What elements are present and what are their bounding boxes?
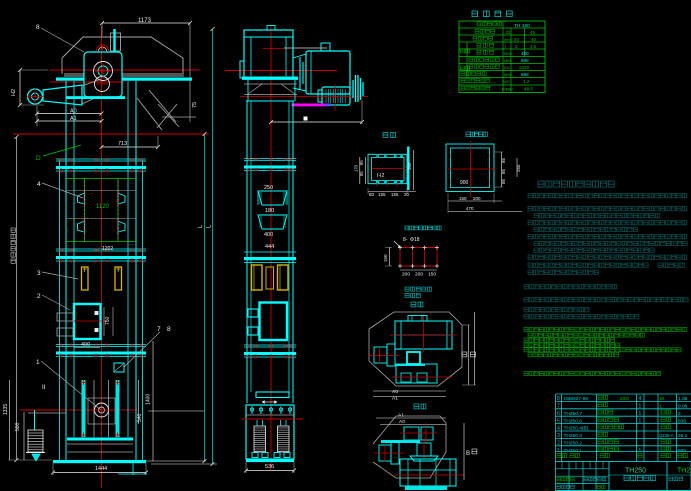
svg-text:200: 200 bbox=[473, 196, 481, 201]
svg-text:9.06: 9.06 bbox=[678, 404, 688, 410]
svg-text:1120: 1120 bbox=[96, 204, 110, 210]
svg-text:TH250.7: TH250.7 bbox=[564, 411, 583, 417]
svg-text:1: 1 bbox=[36, 359, 40, 366]
svg-text:I-I2: I-I2 bbox=[377, 173, 384, 179]
svg-text:48.5: 48.5 bbox=[524, 87, 533, 92]
svg-text:80: 80 bbox=[369, 192, 375, 197]
svg-text:TH250.3: TH250.3 bbox=[564, 433, 583, 439]
svg-text:A1: A1 bbox=[398, 413, 404, 419]
svg-text:32: 32 bbox=[506, 30, 511, 35]
svg-text:L: L bbox=[660, 404, 663, 410]
svg-text:685: 685 bbox=[678, 448, 686, 454]
svg-text:TH2: TH2 bbox=[677, 468, 690, 475]
svg-text:750: 750 bbox=[105, 316, 111, 325]
svg-text:N/S: N/S bbox=[503, 79, 510, 84]
svg-text:713: 713 bbox=[118, 141, 127, 147]
svg-text:A0: A0 bbox=[392, 389, 398, 395]
svg-text:180: 180 bbox=[265, 208, 274, 214]
svg-text:8: 8 bbox=[36, 24, 40, 31]
svg-text:360: 360 bbox=[407, 162, 412, 170]
svg-text:B: B bbox=[466, 451, 470, 457]
svg-text:150: 150 bbox=[383, 254, 388, 262]
svg-text:2: 2 bbox=[678, 411, 681, 417]
svg-text:900: 900 bbox=[460, 180, 469, 186]
svg-text:3: 3 bbox=[37, 270, 41, 277]
svg-text:155: 155 bbox=[378, 192, 386, 197]
svg-text:Q235-A: Q235-A bbox=[659, 433, 674, 438]
svg-text:4: 4 bbox=[639, 396, 642, 402]
svg-text:200: 200 bbox=[415, 272, 423, 278]
svg-text:M: M bbox=[660, 396, 664, 402]
svg-text:540: 540 bbox=[137, 413, 143, 422]
svg-text:1202: 1202 bbox=[102, 246, 113, 252]
svg-text:II: II bbox=[42, 385, 46, 391]
svg-text:7: 7 bbox=[157, 326, 161, 333]
svg-text:888: 888 bbox=[521, 58, 529, 63]
svg-text:85: 85 bbox=[501, 168, 506, 174]
svg-text:150: 150 bbox=[428, 272, 436, 278]
svg-text:85: 85 bbox=[501, 157, 506, 163]
svg-text:45: 45 bbox=[530, 30, 535, 35]
svg-text:3: 3 bbox=[557, 433, 560, 439]
svg-text:85: 85 bbox=[359, 171, 364, 176]
svg-text:4.5: 4.5 bbox=[530, 44, 537, 49]
svg-text:1: 1 bbox=[557, 448, 560, 454]
svg-text:85: 85 bbox=[359, 160, 364, 165]
svg-text:5: 5 bbox=[557, 418, 560, 424]
svg-text:TH250.6: TH250.6 bbox=[564, 418, 583, 424]
svg-text:500: 500 bbox=[15, 422, 21, 431]
svg-text:75: 75 bbox=[192, 102, 198, 108]
svg-text:536: 536 bbox=[265, 464, 274, 470]
svg-text:250: 250 bbox=[264, 185, 273, 191]
svg-text:1335: 1335 bbox=[3, 404, 9, 415]
svg-text:2: 2 bbox=[557, 441, 560, 447]
svg-text:4: 4 bbox=[557, 426, 560, 432]
svg-text:1444: 1444 bbox=[95, 466, 107, 472]
svg-text:l: l bbox=[505, 44, 506, 49]
svg-text:170: 170 bbox=[354, 164, 359, 172]
svg-text:A1: A1 bbox=[392, 396, 398, 402]
svg-text:470: 470 bbox=[466, 206, 474, 211]
svg-text:444: 444 bbox=[265, 244, 274, 250]
svg-text:TH 160: TH 160 bbox=[514, 23, 530, 29]
svg-text:8-: 8- bbox=[403, 237, 408, 243]
svg-text:26.2: 26.2 bbox=[678, 433, 688, 439]
svg-text:1.08: 1.08 bbox=[678, 396, 688, 402]
svg-text:40: 40 bbox=[531, 37, 536, 42]
svg-text:4: 4 bbox=[37, 181, 41, 188]
svg-text:8: 8 bbox=[557, 396, 560, 402]
svg-text:30: 30 bbox=[514, 37, 519, 42]
svg-text:200: 200 bbox=[402, 272, 410, 278]
svg-text:400: 400 bbox=[264, 232, 273, 238]
svg-text:MM: MM bbox=[504, 58, 511, 63]
svg-text:1: 1 bbox=[639, 404, 642, 410]
svg-text:85: 85 bbox=[501, 178, 506, 184]
svg-text:KN: KN bbox=[504, 65, 510, 70]
svg-text:mm: mm bbox=[504, 37, 511, 42]
svg-text:836: 836 bbox=[678, 418, 686, 424]
svg-text:8: 8 bbox=[167, 326, 171, 333]
svg-text:1.2: 1.2 bbox=[523, 79, 530, 84]
svg-text:2: 2 bbox=[37, 293, 41, 300]
svg-text:888: 888 bbox=[521, 72, 529, 77]
svg-text:H2: H2 bbox=[11, 89, 17, 96]
svg-text:1: 1 bbox=[639, 411, 642, 417]
svg-text:20G: 20G bbox=[620, 396, 629, 402]
svg-text:255: 255 bbox=[516, 164, 521, 172]
svg-text:TH250: TH250 bbox=[625, 468, 646, 475]
svg-text:1: 1 bbox=[639, 448, 642, 454]
svg-text:155: 155 bbox=[391, 192, 399, 197]
svg-text:Φ18: Φ18 bbox=[410, 237, 420, 243]
svg-text:≥320: ≥320 bbox=[519, 65, 530, 70]
svg-text:A0: A0 bbox=[399, 419, 405, 425]
svg-text:R/MIN: R/MIN bbox=[502, 88, 513, 92]
svg-text:TH250.1: TH250.1 bbox=[564, 448, 583, 454]
svg-text:480: 480 bbox=[521, 51, 529, 56]
svg-text:TH250.2: TH250.2 bbox=[564, 441, 583, 447]
svg-text:1400: 1400 bbox=[146, 394, 152, 405]
svg-text:GB8827-86: GB8827-86 bbox=[564, 396, 589, 402]
svg-text:TH250.4(B): TH250.4(B) bbox=[564, 426, 589, 432]
svg-text:D: D bbox=[36, 155, 41, 162]
svg-text:1: 1 bbox=[639, 418, 642, 424]
svg-text:7: 7 bbox=[557, 404, 560, 410]
svg-text:150: 150 bbox=[459, 196, 467, 201]
svg-text:400: 400 bbox=[81, 342, 90, 348]
svg-text:MM: MM bbox=[504, 51, 511, 56]
svg-text:MM: MM bbox=[504, 72, 511, 77]
svg-text:6: 6 bbox=[557, 411, 560, 417]
